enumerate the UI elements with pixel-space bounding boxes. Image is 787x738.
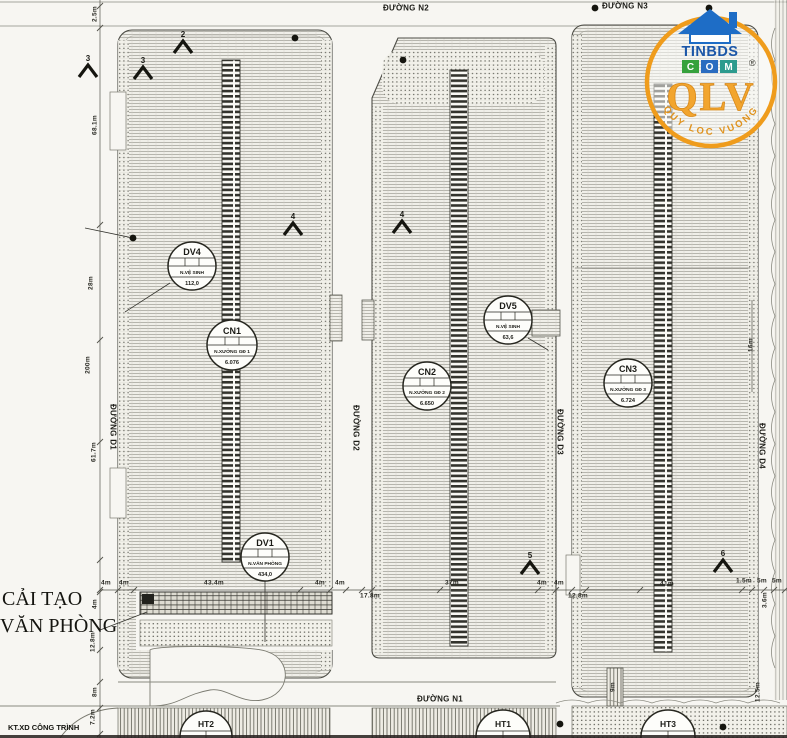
callout-dv4: DV4 N.VỆ SINH 112,0 <box>168 242 216 290</box>
note-renovation-line2: VĂN PHÒNG <box>0 615 117 638</box>
dim-label: 17.8m <box>360 593 380 600</box>
callout-name: N.XƯỞNG GĐ 1 <box>214 348 250 355</box>
site-plan-canvas: 3 3 2 4 4 5 6 DV4 N.VỆ SINH 112,0 CN1 N.… <box>0 0 787 738</box>
building-strip-2 <box>450 70 468 646</box>
section-number: 3 <box>141 56 146 65</box>
logo-brand-top: TINBDS <box>682 44 739 60</box>
dim-label: 4m <box>119 580 129 587</box>
dim-label: 4m <box>335 580 345 587</box>
road-label-n2: ĐƯỜNG N2 <box>383 4 429 13</box>
road-label-d1: ĐƯỜNG D1 <box>109 404 118 450</box>
callout-value: 112,0 <box>185 281 199 287</box>
dim-label: 4m <box>554 580 564 587</box>
dim-label: 16m <box>748 338 755 352</box>
callout-id: HT3 <box>660 719 676 729</box>
dim-label: 5m <box>757 578 767 585</box>
callout-value: 63,6 <box>503 335 514 341</box>
note-corner: KT.XD CÔNG TRÌNH <box>8 723 79 732</box>
callout-id: DV1 <box>256 538 274 548</box>
road-label-d3: ĐƯỜNG D3 <box>556 409 565 455</box>
dim-label: 68.1m <box>92 115 99 135</box>
callout-name: N.XƯỞNG GĐ 3 <box>610 386 646 393</box>
note-renovation-line1: CẢI TẠO <box>2 588 82 611</box>
section-number: 2 <box>181 30 186 39</box>
dim-label: 61.7m <box>91 442 98 462</box>
dim-label: 28m <box>88 276 95 290</box>
logo-brand-main: QLV <box>666 74 755 119</box>
section-number: 6 <box>721 549 726 558</box>
callout-id: CN2 <box>418 367 436 377</box>
road-label-d4: ĐƯỜNG D4 <box>758 423 767 469</box>
dv5-annex <box>532 310 560 336</box>
callout-dv1: DV1 N.VĂN PHÒNG 434,0 <box>241 533 289 581</box>
plan-drawing: 3 3 2 4 4 5 6 DV4 N.VỆ SINH 112,0 CN1 N.… <box>0 0 787 738</box>
dim-label: 4m <box>101 580 111 587</box>
dim-label: 5m <box>772 578 782 585</box>
callout-id: DV5 <box>499 301 517 311</box>
callout-dv5: DV5 N.VỆ SINH 63,6 <box>484 296 532 344</box>
callout-cn2: CN2 N.XƯỞNG GĐ 2 6.650 <box>403 362 451 410</box>
dim-label: 1.5m <box>736 578 752 585</box>
callout-id: CN1 <box>223 326 241 336</box>
right-strip <box>774 0 787 700</box>
callout-cn1: CN1 N.XƯỞNG GĐ 1 6.076 <box>207 320 257 370</box>
dim-label: 12.8m <box>568 593 588 600</box>
logo-letter-m: M <box>724 62 732 73</box>
callout-value: 6.724 <box>621 398 636 404</box>
section-marker-3a: 3 <box>79 54 97 77</box>
callout-value: 6.650 <box>420 401 434 407</box>
road-label-d2: ĐƯỜNG D2 <box>352 405 361 451</box>
callout-id: HT2 <box>198 719 214 729</box>
curved-road <box>150 646 285 706</box>
callout-id: DV4 <box>183 247 201 257</box>
callout-value: 6.076 <box>225 360 239 366</box>
section-number: 3 <box>86 54 91 63</box>
dim-label: 9m <box>610 682 617 692</box>
dim-label: 8m <box>92 687 99 697</box>
building-strip-3 <box>654 84 672 652</box>
dim-label: 2.5m <box>92 6 99 22</box>
road-label-n1: ĐƯỜNG N1 <box>417 695 463 704</box>
logo-letter-c: C <box>687 62 694 73</box>
dim-label: 200m <box>85 356 92 374</box>
section-number: 4 <box>400 210 405 219</box>
dim-label: 37m <box>445 580 459 587</box>
callout-value: 434,0 <box>258 572 272 578</box>
callout-id: HT1 <box>495 719 511 729</box>
callout-cn3: CN3 N.XƯỞNG GĐ 3 6.724 <box>604 359 652 407</box>
dim-label: 7.2m <box>90 709 97 725</box>
logo-letter-o: O <box>706 62 714 73</box>
section-number: 5 <box>528 551 533 560</box>
dim-label: 4m <box>537 580 547 587</box>
callout-name: N.XƯỞNG GĐ 2 <box>409 389 445 396</box>
cloud-edge-bottom <box>556 700 780 703</box>
office-area <box>136 588 334 650</box>
logo-house-body-icon <box>690 34 730 43</box>
callout-id: CN3 <box>619 364 637 374</box>
dim-label: 12.5m <box>755 682 762 702</box>
dim-label: 43.4m <box>204 580 224 587</box>
building-strip-1 <box>222 60 240 562</box>
dim-label: 4m <box>315 580 325 587</box>
logo-registered-mark: ® <box>749 58 756 68</box>
dim-label: 41m <box>660 581 674 588</box>
road-label-n3: ĐƯỜNG N3 <box>602 2 648 11</box>
section-number: 4 <box>291 212 296 221</box>
dim-label: 4m <box>92 599 99 609</box>
dim-label: 3.6m <box>762 592 769 608</box>
